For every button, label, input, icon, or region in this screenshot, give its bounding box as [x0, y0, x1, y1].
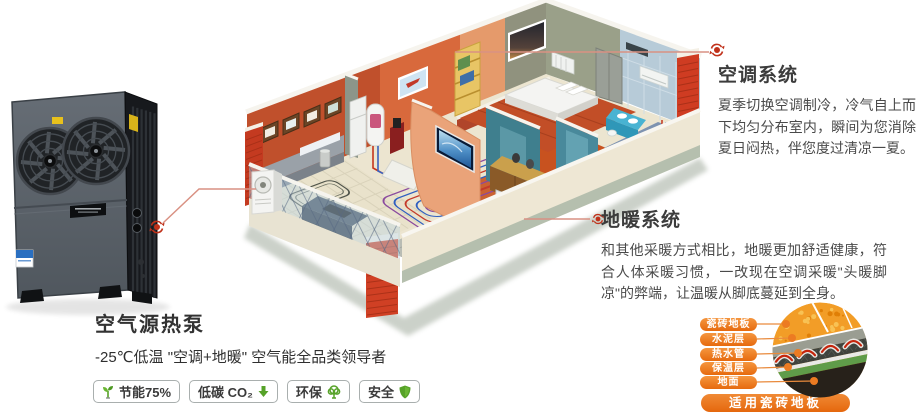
trash-can — [320, 149, 330, 167]
warning-sticker — [52, 117, 63, 124]
badge-eco-friendly: 环保 — [287, 380, 350, 403]
bookshelf — [455, 42, 480, 116]
ac-system-title: 空调系统 — [718, 60, 916, 87]
badge-safety: 安全 — [359, 380, 420, 403]
fridge — [350, 96, 366, 158]
pressure-gauge — [133, 224, 142, 233]
promo-page: { "product": { "name": "空气源热泵", "tagline… — [0, 0, 924, 418]
heat-pump-unit — [6, 92, 170, 315]
heat-pump-leader-line — [163, 189, 256, 223]
product-tagline: -25℃低温 "空调+地暖" 空气能全品类领导者 — [95, 346, 420, 367]
floor-heating-section: 地暖系统 和其他采暖方式相比，地暖更加舒适健康，符合人体采暖习惯，一改现在空调采… — [601, 205, 887, 305]
co2-down-arrow-icon — [258, 385, 269, 398]
floor-heating-description: 和其他采暖方式相比，地暖更加舒适健康，符合人体采暖习惯，一改现在空调采暖"头暖脚… — [601, 240, 887, 305]
product-name: 空气源热泵 — [95, 308, 420, 337]
pressure-gauge — [133, 209, 142, 218]
badge-label: 低碳 CO₂ — [198, 382, 253, 401]
outdoor-unit — [252, 170, 282, 214]
swirl-marker-icon — [710, 44, 725, 55]
badge-label: 节能75% — [119, 382, 171, 401]
badge-label: 安全 — [368, 382, 394, 401]
feature-badges: 节能75% 低碳 CO₂ 环保 安全 — [93, 380, 420, 403]
sprout-icon — [102, 385, 114, 399]
product-info: 空气源热泵 -25℃低温 "空调+地暖" 空气能全品类领导者 节能75% 低碳 … — [95, 308, 420, 403]
ac-system-description: 夏季切换空调制冷，冷气自上而下均匀分布室内，瞬间为您消除夏日闷热，伴您度过清凉一… — [718, 95, 916, 160]
badge-energy-saving: 节能75% — [93, 380, 180, 403]
floor-heating-title: 地暖系统 — [601, 205, 887, 232]
floor-structure-diagram — [757, 302, 871, 400]
tree-icon — [327, 385, 341, 399]
badge-label: 环保 — [296, 382, 322, 401]
ac-system-section: 空调系统 夏季切换空调制冷，冷气自上而下均匀分布室内，瞬间为您消除夏日闷热，伴您… — [718, 60, 916, 160]
toilet — [608, 130, 617, 136]
badge-low-carbon: 低碳 CO₂ — [189, 380, 278, 403]
wardrobe — [596, 48, 622, 104]
warning-sticker — [129, 114, 138, 132]
fan-icon — [63, 118, 129, 184]
brand-sticker — [16, 250, 33, 267]
shield-icon — [399, 385, 411, 399]
